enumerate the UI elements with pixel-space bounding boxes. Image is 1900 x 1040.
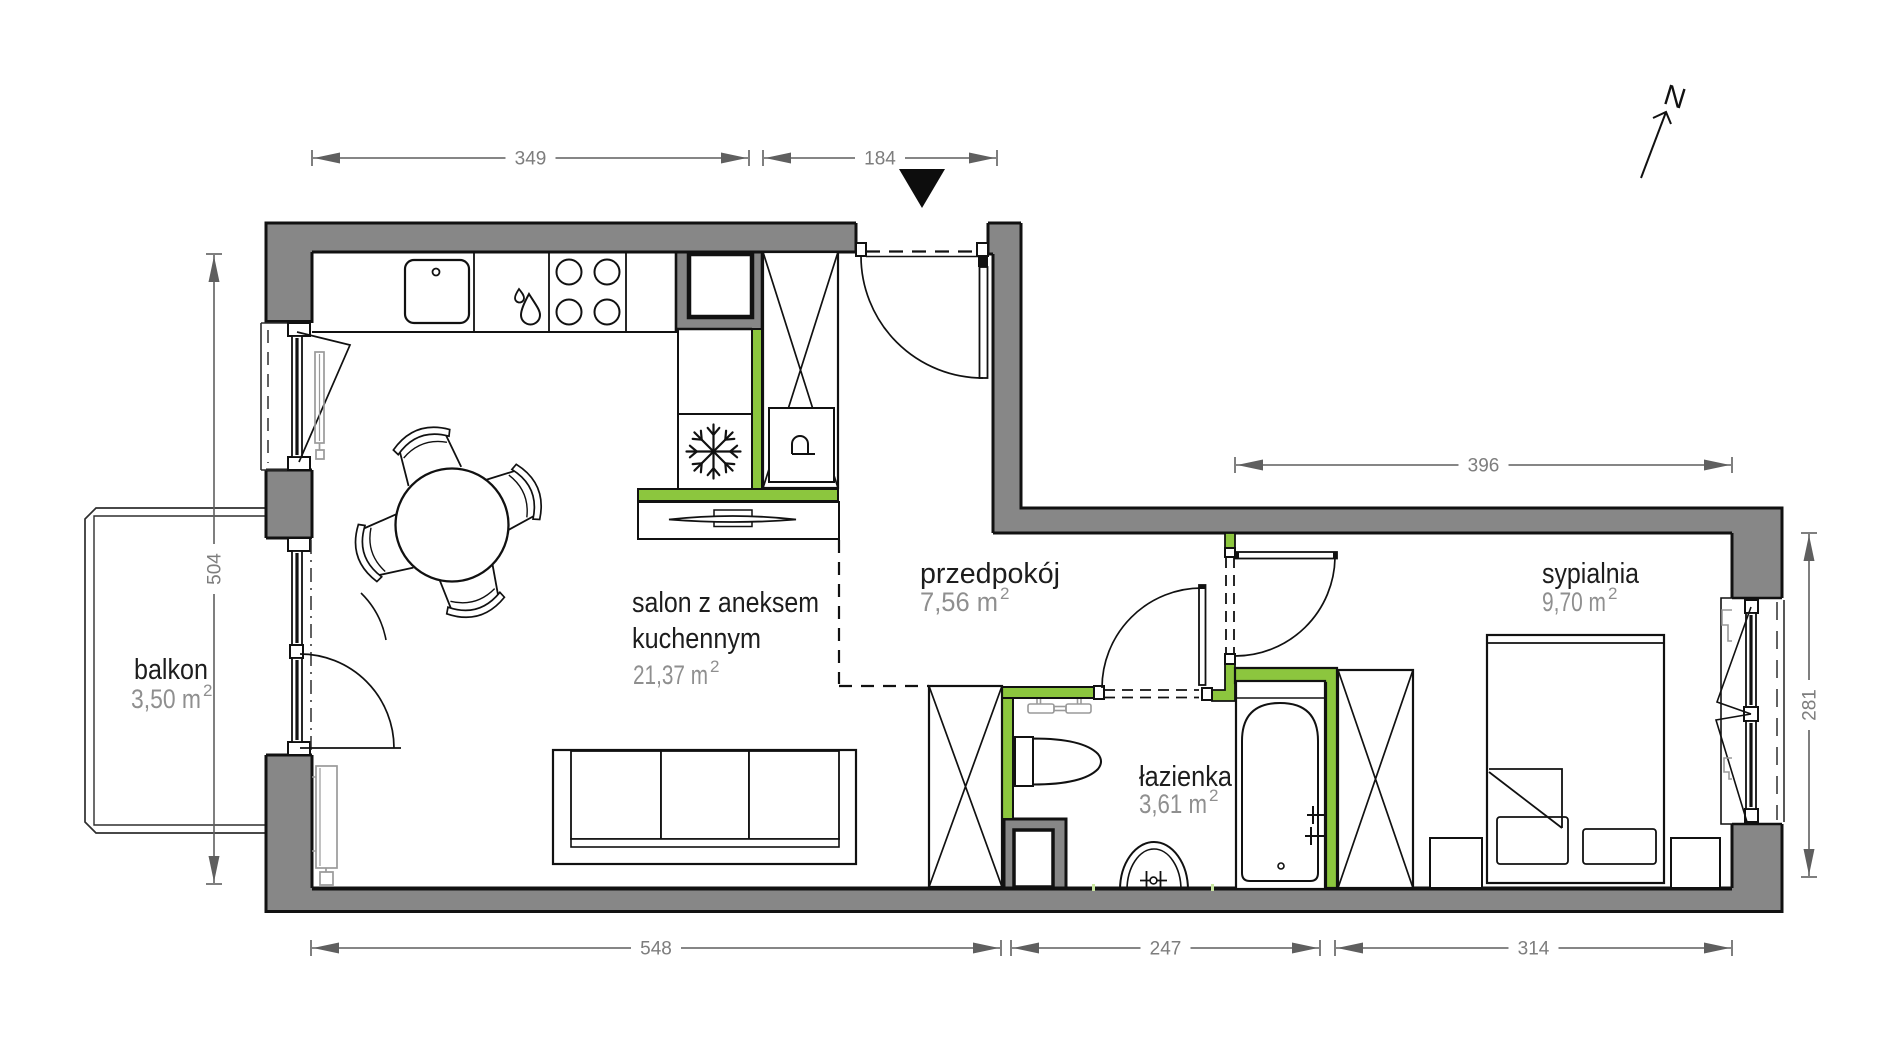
- svg-text:504: 504: [205, 553, 226, 585]
- svg-text:2: 2: [1608, 584, 1617, 603]
- svg-text:247: 247: [1150, 939, 1182, 960]
- svg-text:548: 548: [640, 939, 672, 960]
- svg-text:281: 281: [1800, 689, 1821, 721]
- svg-text:396: 396: [1468, 456, 1500, 477]
- svg-text:184: 184: [864, 149, 896, 170]
- svg-text:2: 2: [203, 681, 212, 700]
- svg-text:sypialnia: sypialnia: [1542, 558, 1640, 590]
- svg-text:3,61 m: 3,61 m: [1139, 789, 1207, 819]
- svg-text:2: 2: [710, 657, 719, 676]
- svg-text:349: 349: [515, 149, 547, 170]
- svg-text:2: 2: [1209, 786, 1218, 805]
- svg-text:balkon: balkon: [134, 654, 208, 686]
- svg-text:2: 2: [1000, 584, 1009, 603]
- svg-text:7,56 m: 7,56 m: [920, 587, 998, 617]
- svg-text:salon z aneksem: salon z aneksem: [632, 587, 819, 619]
- svg-text:przedpokój: przedpokój: [920, 558, 1060, 590]
- svg-text:21,37 m: 21,37 m: [633, 660, 708, 690]
- svg-text:3,50 m: 3,50 m: [131, 684, 201, 714]
- svg-text:9,70 m: 9,70 m: [1542, 587, 1606, 617]
- svg-text:kuchennym: kuchennym: [632, 623, 761, 655]
- svg-text:314: 314: [1518, 939, 1550, 960]
